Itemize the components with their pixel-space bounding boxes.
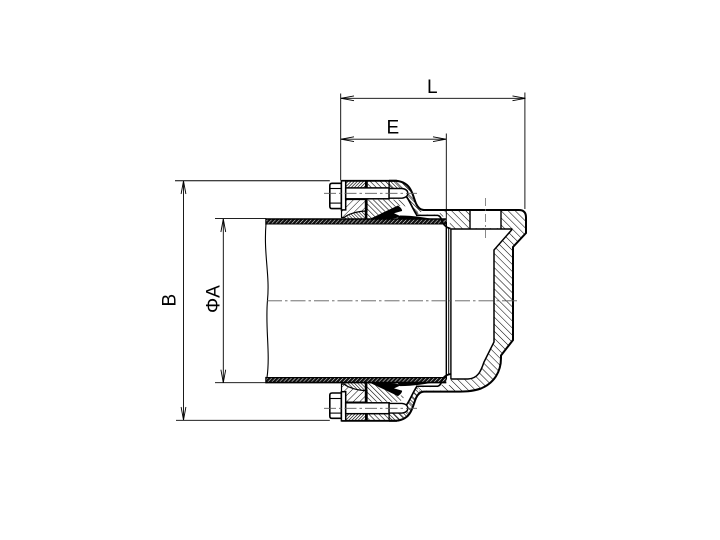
- svg-text:E: E: [387, 118, 400, 139]
- svg-text:ΦA: ΦA: [203, 285, 224, 313]
- svg-text:B: B: [160, 294, 181, 307]
- svg-text:L: L: [427, 77, 438, 98]
